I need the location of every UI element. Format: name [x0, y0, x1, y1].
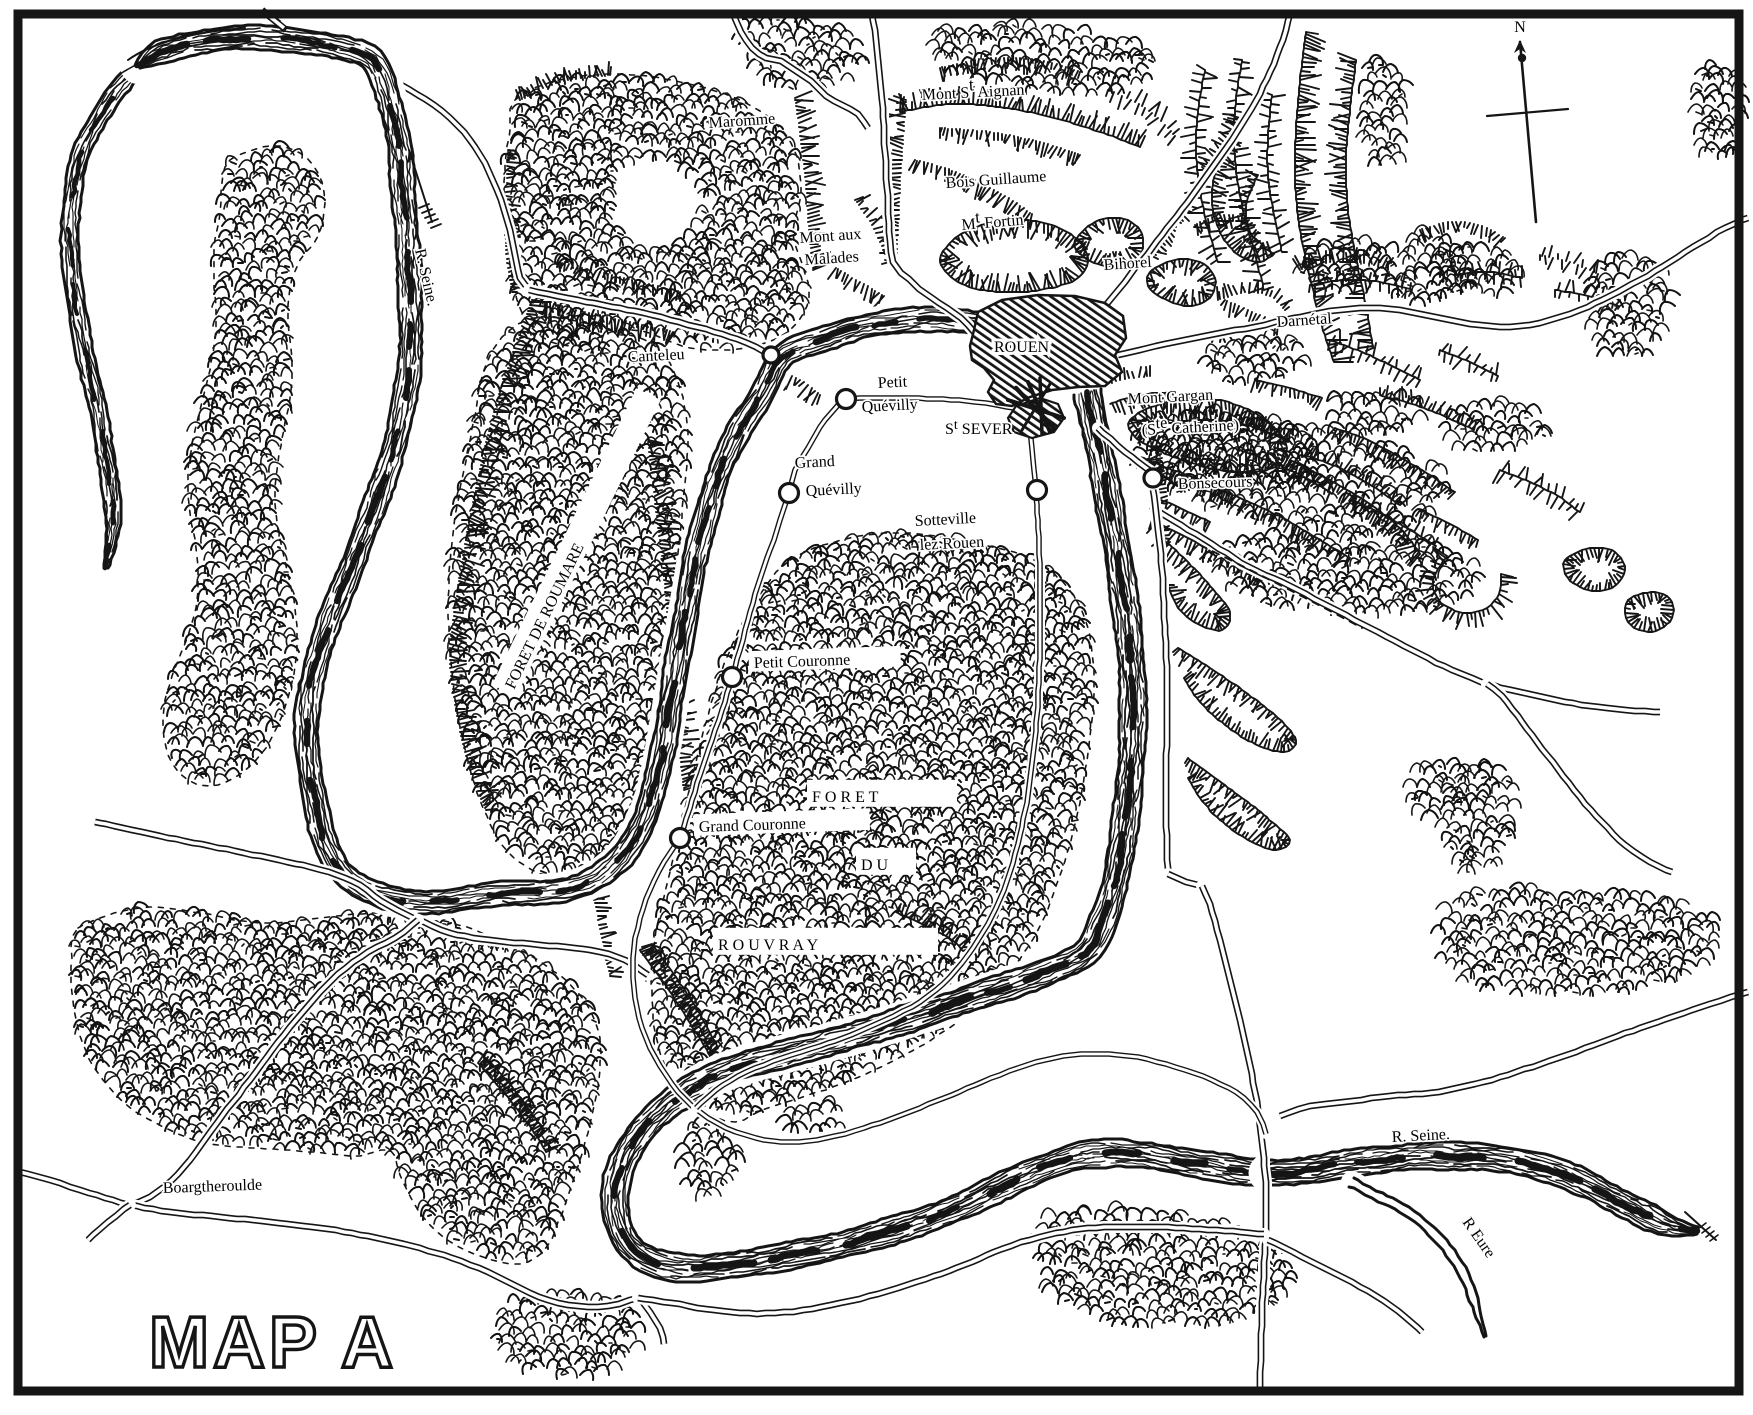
svg-text:D U: D U: [861, 857, 889, 874]
svg-text:F O R E T: F O R E T: [812, 789, 879, 806]
svg-text:Sotteville: Sotteville: [914, 510, 976, 530]
svg-text:Quévilly: Quévilly: [861, 396, 918, 416]
svg-text:Grand: Grand: [794, 453, 835, 472]
svg-text:R O U V R A Y: R O U V R A Y: [718, 937, 819, 954]
svg-text:N: N: [1514, 19, 1526, 36]
svg-text:R. Seine.: R. Seine.: [1391, 1126, 1450, 1146]
svg-text:lez Rouen: lez Rouen: [919, 534, 984, 554]
svg-text:Bihorel: Bihorel: [1103, 254, 1153, 274]
svg-text:Bonsecours: Bonsecours: [1178, 473, 1253, 493]
svg-text:ROUEN: ROUEN: [994, 339, 1050, 356]
svg-text:MAP A: MAP A: [149, 1303, 397, 1383]
svg-text:Petit: Petit: [877, 373, 908, 392]
svg-text:Petit Couronne: Petit Couronne: [754, 652, 851, 672]
svg-text:Quévilly: Quévilly: [805, 480, 862, 500]
svg-text:Boargtheroulde: Boargtheroulde: [163, 1177, 263, 1197]
svg-text:Canteleu: Canteleu: [627, 346, 685, 366]
